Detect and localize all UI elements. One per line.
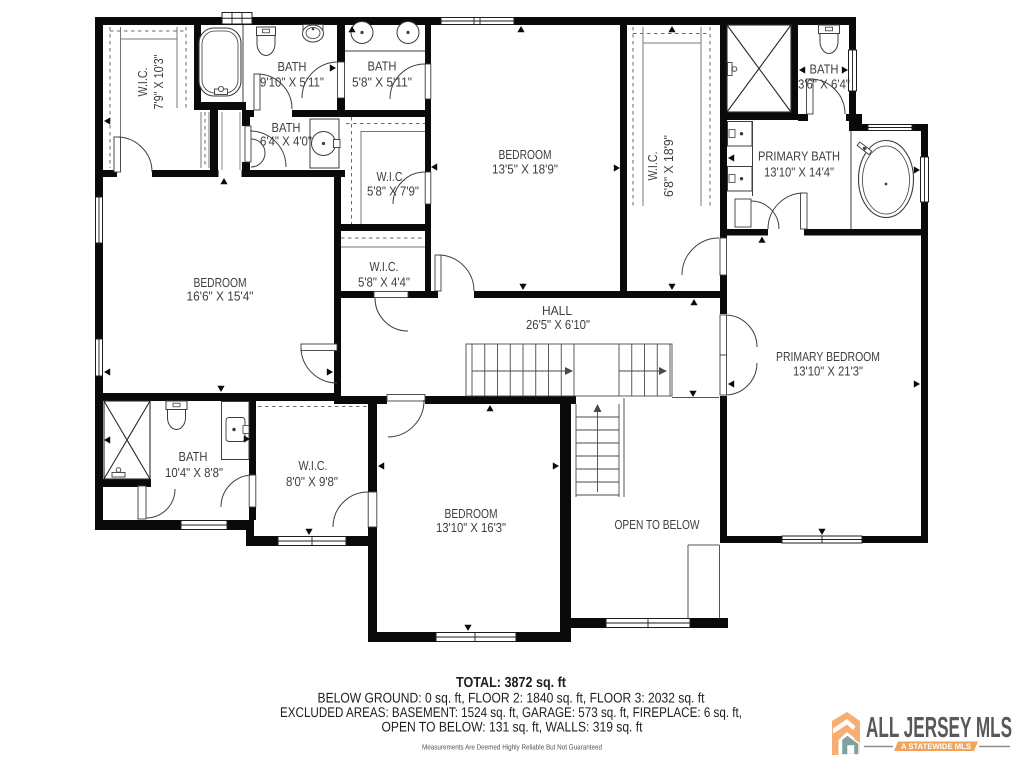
svg-text:9'10" X 5'11": 9'10" X 5'11" (260, 75, 324, 90)
svg-text:13'10" X 21'3": 13'10" X 21'3" (793, 364, 863, 379)
svg-text:OPEN TO BELOW: 131 sq. ft, WAL: OPEN TO BELOW: 131 sq. ft, WALLS: 319 sq… (382, 719, 643, 735)
svg-text:BATH: BATH (278, 59, 307, 74)
svg-text:OPEN TO BELOW: OPEN TO BELOW (615, 517, 701, 532)
svg-text:7'9" X 10'3": 7'9" X 10'3" (151, 54, 166, 109)
svg-text:10'4" X 8'8": 10'4" X 8'8" (165, 465, 223, 480)
svg-text:W.I.C.: W.I.C. (645, 152, 660, 181)
svg-text:A STATEWIDE MLS: A STATEWIDE MLS (901, 742, 972, 751)
svg-text:5'8" X 7'9": 5'8" X 7'9" (367, 184, 419, 199)
svg-text:BATH: BATH (179, 449, 208, 464)
svg-text:PRIMARY BEDROOM: PRIMARY BEDROOM (776, 349, 880, 364)
svg-text:3'6" X 6'4": 3'6" X 6'4" (798, 77, 850, 92)
svg-text:ALL JERSEY MLS: ALL JERSEY MLS (866, 712, 1012, 744)
svg-text:8'0" X 9'8": 8'0" X 9'8" (286, 474, 338, 489)
svg-text:6'8" X 18'9": 6'8" X 18'9" (661, 135, 676, 197)
svg-text:13'5" X 18'9": 13'5" X 18'9" (492, 162, 558, 177)
svg-text:13'10" X 14'4": 13'10" X 14'4" (764, 165, 834, 180)
svg-text:26'5" X 6'10": 26'5" X 6'10" (526, 317, 590, 332)
svg-text:BATH: BATH (368, 59, 397, 74)
svg-text:W.I.C.: W.I.C. (135, 68, 150, 97)
svg-text:5'8" X 4'4": 5'8" X 4'4" (358, 275, 410, 290)
svg-text:16'6" X 15'4": 16'6" X 15'4" (187, 289, 254, 304)
svg-text:W.I.C.: W.I.C. (299, 458, 328, 473)
svg-text:6'4" X 4'0": 6'4" X 4'0" (260, 134, 312, 149)
svg-text:BEDROOM: BEDROOM (445, 506, 498, 521)
svg-text:BEDROOM: BEDROOM (499, 147, 552, 162)
svg-text:BATH: BATH (810, 62, 839, 77)
svg-text:HALL: HALL (542, 303, 572, 318)
svg-text:W.I.C.: W.I.C. (377, 169, 406, 184)
svg-text:13'10" X 16'3": 13'10" X 16'3" (436, 520, 506, 535)
svg-text:Measurements Are Deemed Highly: Measurements Are Deemed Highly Reliable … (422, 743, 602, 752)
svg-text:5'8" X 5'11": 5'8" X 5'11" (352, 75, 412, 90)
svg-text:PRIMARY BATH: PRIMARY BATH (758, 149, 840, 164)
svg-text:W.I.C.: W.I.C. (370, 259, 399, 274)
